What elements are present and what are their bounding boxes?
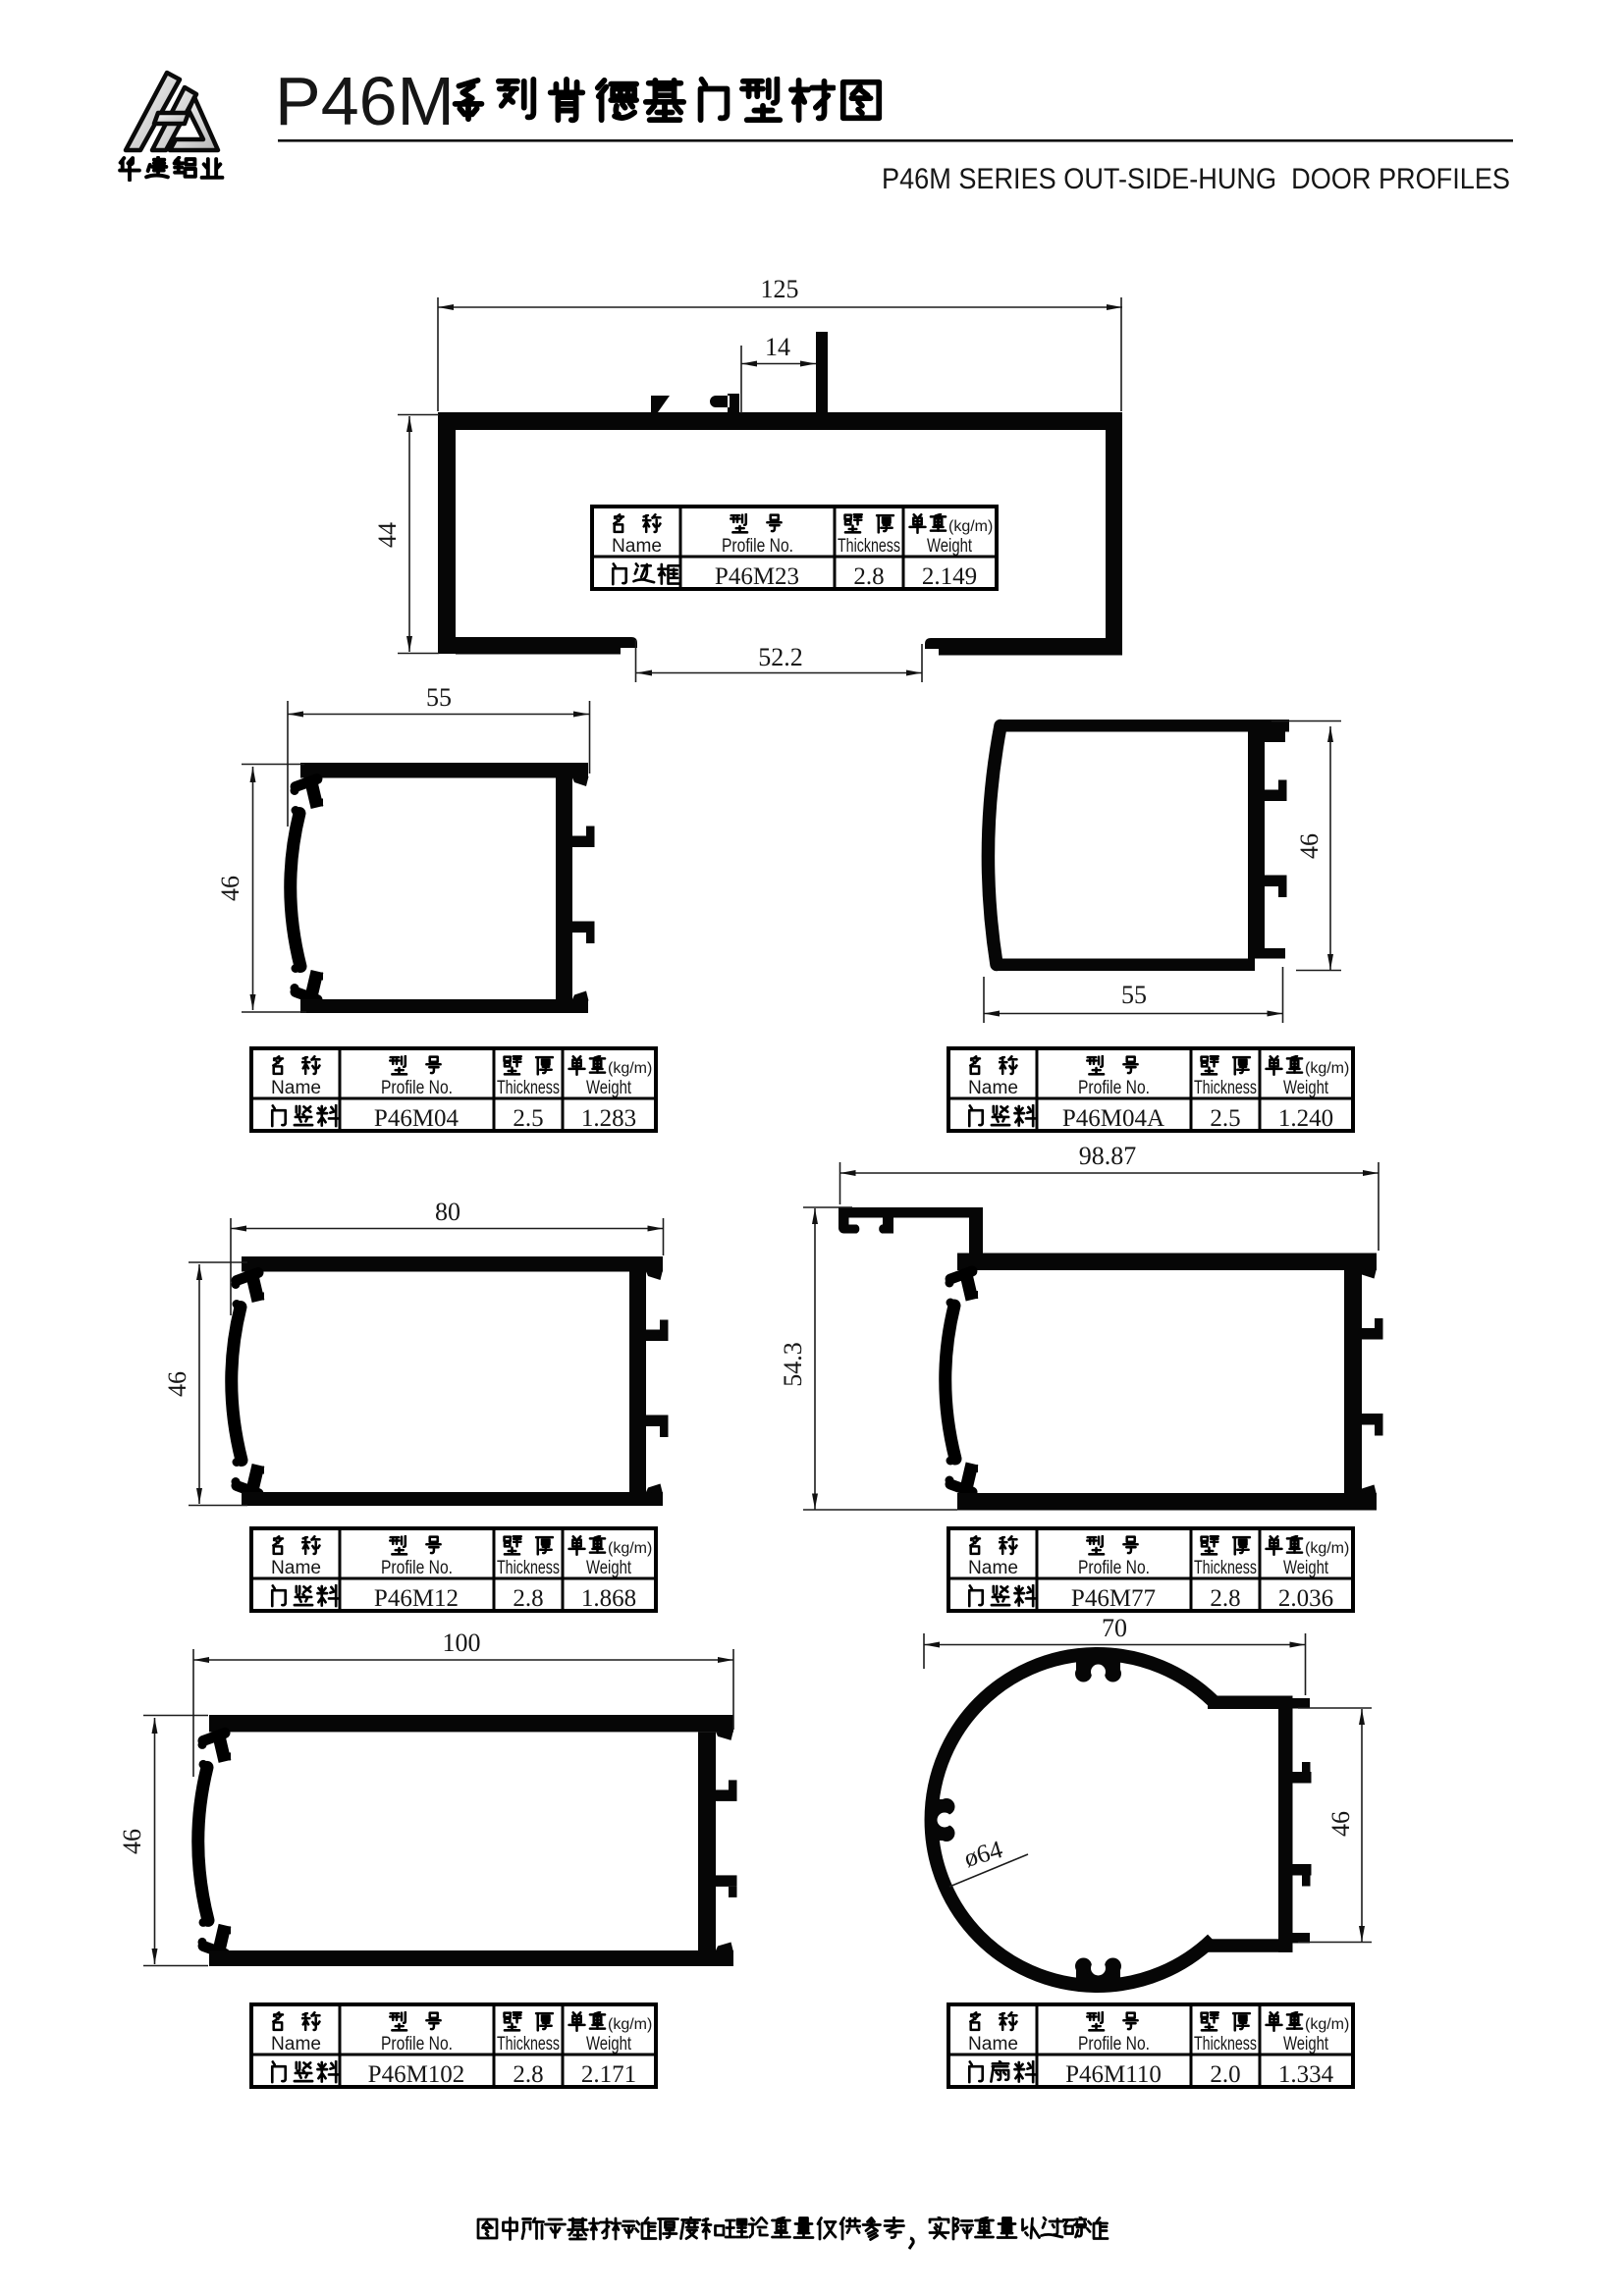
svg-text:2.0: 2.0	[1210, 2061, 1240, 2088]
svg-text:P46M23: P46M23	[715, 563, 799, 590]
svg-text:P46M77: P46M77	[1071, 1585, 1156, 1612]
svg-text:125: 125	[761, 275, 799, 303]
svg-text:P46M04: P46M04	[374, 1105, 460, 1132]
svg-text:P46M04A: P46M04A	[1062, 1105, 1164, 1132]
svg-text:98.87: 98.87	[1079, 1142, 1137, 1170]
svg-text:46: 46	[118, 1829, 146, 1854]
svg-text:2.8: 2.8	[853, 563, 884, 590]
svg-text:44: 44	[373, 522, 402, 548]
svg-text:1.334: 1.334	[1278, 2061, 1334, 2088]
svg-text:1.240: 1.240	[1278, 1105, 1333, 1132]
svg-text:46: 46	[1326, 1811, 1355, 1837]
svg-text:70: 70	[1102, 1614, 1127, 1642]
svg-text:2.8: 2.8	[513, 1585, 543, 1612]
svg-text:52.2: 52.2	[758, 643, 803, 671]
svg-text:2.036: 2.036	[1278, 1585, 1333, 1612]
svg-text:55: 55	[1121, 981, 1147, 1009]
svg-text:P46M110: P46M110	[1065, 2061, 1162, 2088]
svg-text:1.283: 1.283	[581, 1105, 636, 1132]
svg-text:2.8: 2.8	[513, 2061, 543, 2088]
svg-text:46: 46	[1295, 833, 1324, 859]
svg-text:P46M12: P46M12	[374, 1585, 459, 1612]
svg-text:1.868: 1.868	[581, 1585, 636, 1612]
svg-text:P46M102: P46M102	[368, 2061, 465, 2088]
svg-text:100: 100	[443, 1629, 481, 1657]
svg-text:2.5: 2.5	[1210, 1105, 1240, 1132]
svg-text:P46M SERIES OUT-SIDE-HUNG DOO: P46M SERIES OUT-SIDE-HUNG DOOR PROFILES	[882, 163, 1510, 195]
svg-text:54.3: 54.3	[779, 1342, 807, 1387]
svg-text:2.8: 2.8	[1210, 1585, 1240, 1612]
svg-text:55: 55	[426, 683, 452, 712]
svg-text:46: 46	[216, 876, 244, 901]
svg-text:2.5: 2.5	[513, 1105, 543, 1132]
svg-text:2.149: 2.149	[922, 563, 977, 590]
svg-text:P46M: P46M	[275, 63, 455, 139]
svg-text:2.171: 2.171	[581, 2061, 636, 2088]
svg-text:46: 46	[163, 1371, 191, 1397]
svg-text:80: 80	[435, 1198, 460, 1226]
svg-text:14: 14	[765, 333, 790, 361]
